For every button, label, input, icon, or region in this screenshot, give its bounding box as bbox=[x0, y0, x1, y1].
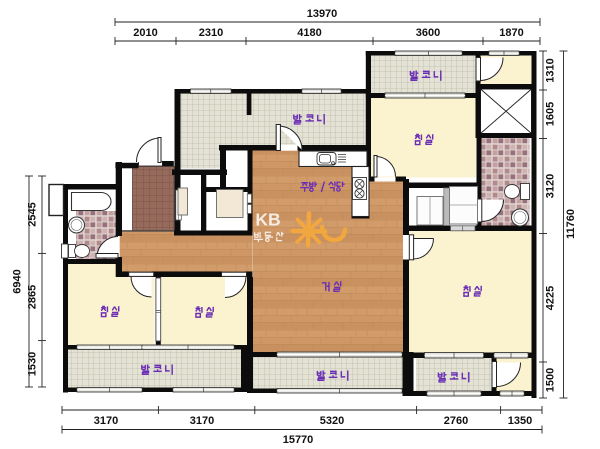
svg-text:1605: 1605 bbox=[545, 102, 557, 126]
svg-text:3170: 3170 bbox=[94, 415, 118, 427]
svg-text:2865: 2865 bbox=[27, 285, 39, 309]
svg-text:2010: 2010 bbox=[133, 27, 157, 39]
svg-text:1310: 1310 bbox=[545, 58, 557, 82]
svg-text:1870: 1870 bbox=[499, 27, 523, 39]
svg-text:13970: 13970 bbox=[307, 8, 338, 20]
svg-text:3120: 3120 bbox=[545, 174, 557, 198]
svg-text:1500: 1500 bbox=[545, 368, 557, 392]
svg-text:3600: 3600 bbox=[416, 27, 440, 39]
svg-text:11760: 11760 bbox=[565, 209, 577, 239]
svg-text:3170: 3170 bbox=[190, 415, 214, 427]
svg-text:6940: 6940 bbox=[12, 269, 24, 293]
svg-text:5320: 5320 bbox=[320, 415, 344, 427]
svg-text:4180: 4180 bbox=[297, 27, 321, 39]
svg-text:2545: 2545 bbox=[27, 202, 39, 226]
svg-text:15770: 15770 bbox=[283, 434, 314, 446]
svg-text:1530: 1530 bbox=[27, 352, 39, 376]
svg-text:2760: 2760 bbox=[444, 415, 468, 427]
svg-text:KB: KB bbox=[255, 210, 280, 230]
svg-text:1350: 1350 bbox=[508, 415, 532, 427]
svg-text:4225: 4225 bbox=[545, 286, 557, 310]
svg-text:2310: 2310 bbox=[199, 27, 223, 39]
